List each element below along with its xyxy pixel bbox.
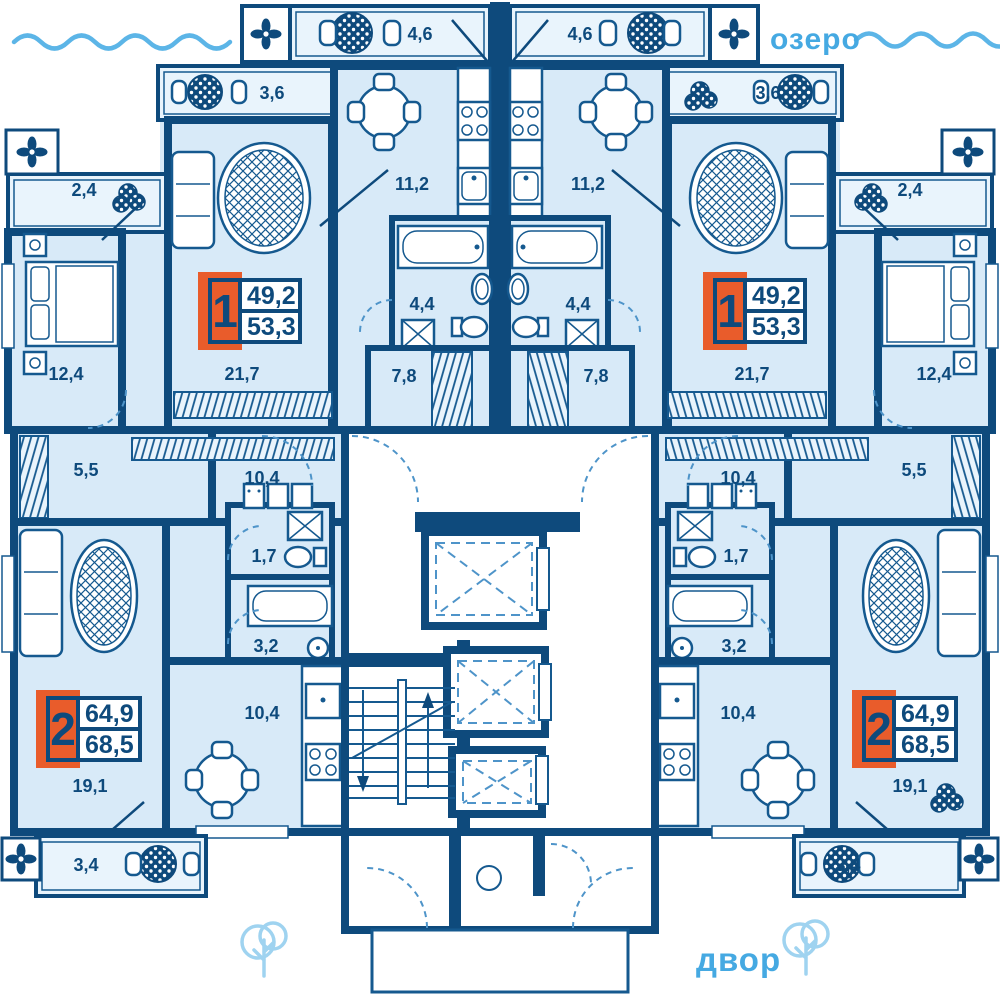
room-label-hall-two-left: 5,5 [73,460,98,480]
apartment-number: 1 [717,285,743,337]
lake-wave-left [14,36,230,49]
elevator-large [425,532,549,626]
room-label-top-balcony-right: 4,6 [567,24,592,44]
total-area: 53,3 [752,313,801,341]
room-label-side-balcony-left: 2,4 [71,180,96,200]
garbage-chute [477,866,501,890]
room-label-hall-one-right: 7,8 [583,366,608,386]
room-label-living-one-right: 21,7 [734,364,769,384]
vestibule [372,930,628,992]
room-label-living-two-right: 19,1 [892,776,927,796]
room-label-hall-two-right: 5,5 [901,460,926,480]
central-core [345,430,655,992]
living-area: 64,9 [85,700,134,728]
tree-icon [242,923,286,976]
living-area: 49,2 [247,282,296,310]
room-label-bottom-balcony-left: 3,4 [73,855,98,875]
room-label-hall-one-left: 7,8 [391,366,416,386]
room-label-upper-balcony-right: 3,6 [755,83,780,103]
elevator-small [452,750,548,814]
room-label-living-two-left: 19,1 [72,776,107,796]
room-label-bedroom-left: 12,4 [48,364,83,384]
living-area: 49,2 [752,282,801,310]
elevator-door [536,756,548,804]
room-label-bedroom-right: 12,4 [916,364,951,384]
room-label-wc-right: 1,7 [723,546,748,566]
total-area: 68,5 [85,731,134,759]
elevator-door [539,664,551,720]
apartment-number: 2 [866,703,892,755]
floor-plan-page: озеро двор [0,0,1000,999]
room-label-wc-left: 1,7 [251,546,276,566]
room-label-bathroom-one-left: 4,4 [409,294,434,314]
elevator-mid [447,650,551,734]
apartment-number: 2 [50,703,76,755]
lobby-wall [449,836,461,930]
room-label-living-one-left: 21,7 [224,364,259,384]
lake-wave-right [856,34,1000,47]
badge-apartment-2-right: 2 64,9 68,5 [852,690,956,768]
yard-label: двор [696,941,781,978]
tree-icon [784,921,828,974]
room-label-bathroom-one-right: 4,4 [565,294,590,314]
stair-stringer [398,680,406,804]
room-label-corridor-two-right: 10,4 [720,468,755,488]
living-area: 64,9 [901,700,950,728]
room-label-bathroom-two-right: 3,2 [721,636,746,656]
room-label-upper-balcony-left: 3,6 [259,83,284,103]
badge-apartment-1-left: 1 49,2 53,3 [198,272,300,350]
total-area: 68,5 [901,731,950,759]
room-label-kitchen-two-right: 10,4 [720,703,755,723]
floor-plan-canvas: озеро двор [0,0,1000,999]
room-label-kitchen-two-left: 10,4 [244,703,279,723]
room-label-side-balcony-right: 2,4 [897,180,922,200]
room-label-kitchen-one-left: 11,2 [395,174,429,194]
badge-apartment-2-left: 2 64,9 68,5 [36,690,140,768]
total-area: 53,3 [247,313,296,341]
room-label-kitchen-one-right: 11,2 [571,174,605,194]
elevator-door [537,548,549,610]
room-label-corridor-two-left: 10,4 [244,468,279,488]
lobby-wall [533,836,545,896]
room-label-top-balcony-left: 4,6 [407,24,432,44]
apartment-number: 1 [212,285,238,337]
badge-apartment-1-right: 1 49,2 53,3 [703,272,805,350]
room-label-bathroom-two-left: 3,2 [253,636,278,656]
lake-label: озеро [770,23,861,56]
room-label-bottom-balcony-right: 3,4 [835,855,860,875]
